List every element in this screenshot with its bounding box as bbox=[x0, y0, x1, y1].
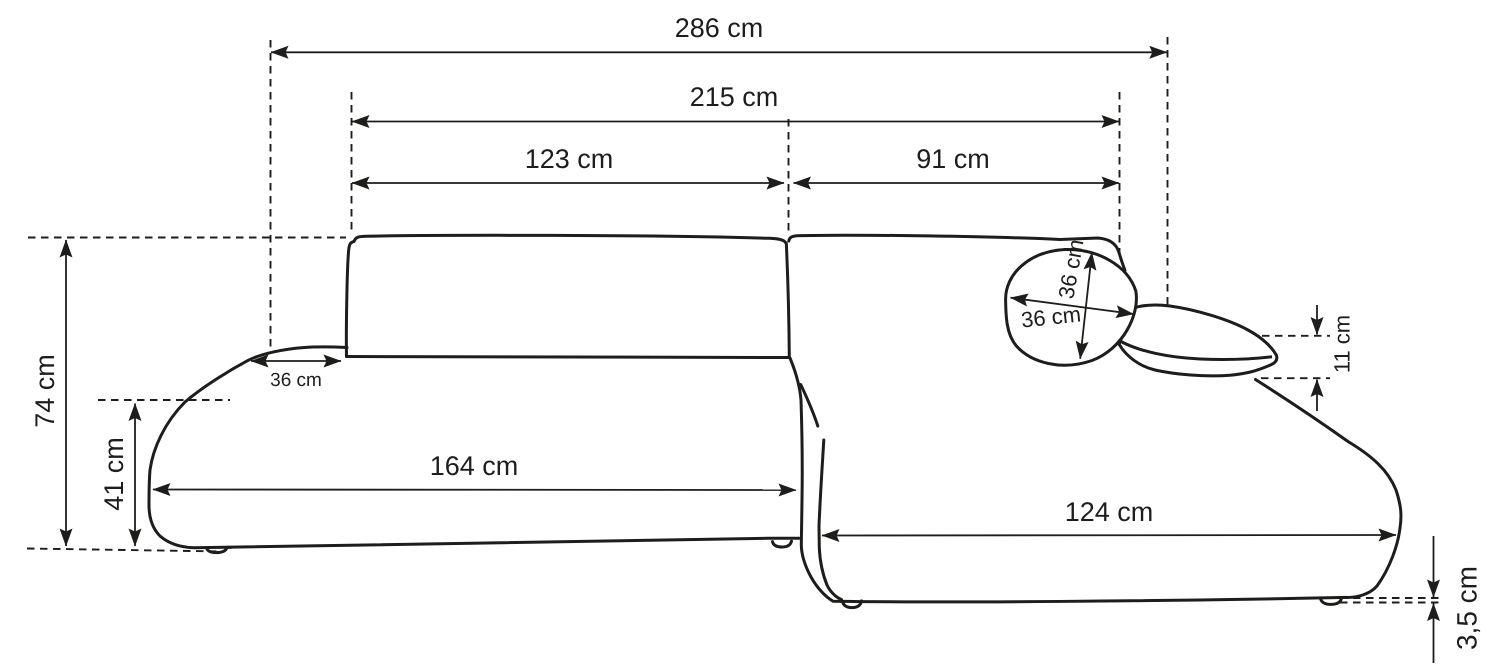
svg-text:91 cm: 91 cm bbox=[916, 144, 990, 174]
svg-text:74 cm: 74 cm bbox=[30, 354, 60, 428]
svg-text:124 cm: 124 cm bbox=[1065, 497, 1154, 527]
svg-text:36 cm: 36 cm bbox=[270, 370, 322, 391]
svg-text:286 cm: 286 cm bbox=[675, 13, 764, 43]
svg-text:215 cm: 215 cm bbox=[690, 82, 779, 112]
svg-text:11 cm: 11 cm bbox=[1330, 315, 1355, 373]
svg-text:41 cm: 41 cm bbox=[99, 437, 129, 511]
svg-text:123 cm: 123 cm bbox=[525, 144, 614, 174]
svg-text:3,5 cm: 3,5 cm bbox=[1452, 566, 1483, 650]
svg-text:164 cm: 164 cm bbox=[430, 451, 519, 481]
